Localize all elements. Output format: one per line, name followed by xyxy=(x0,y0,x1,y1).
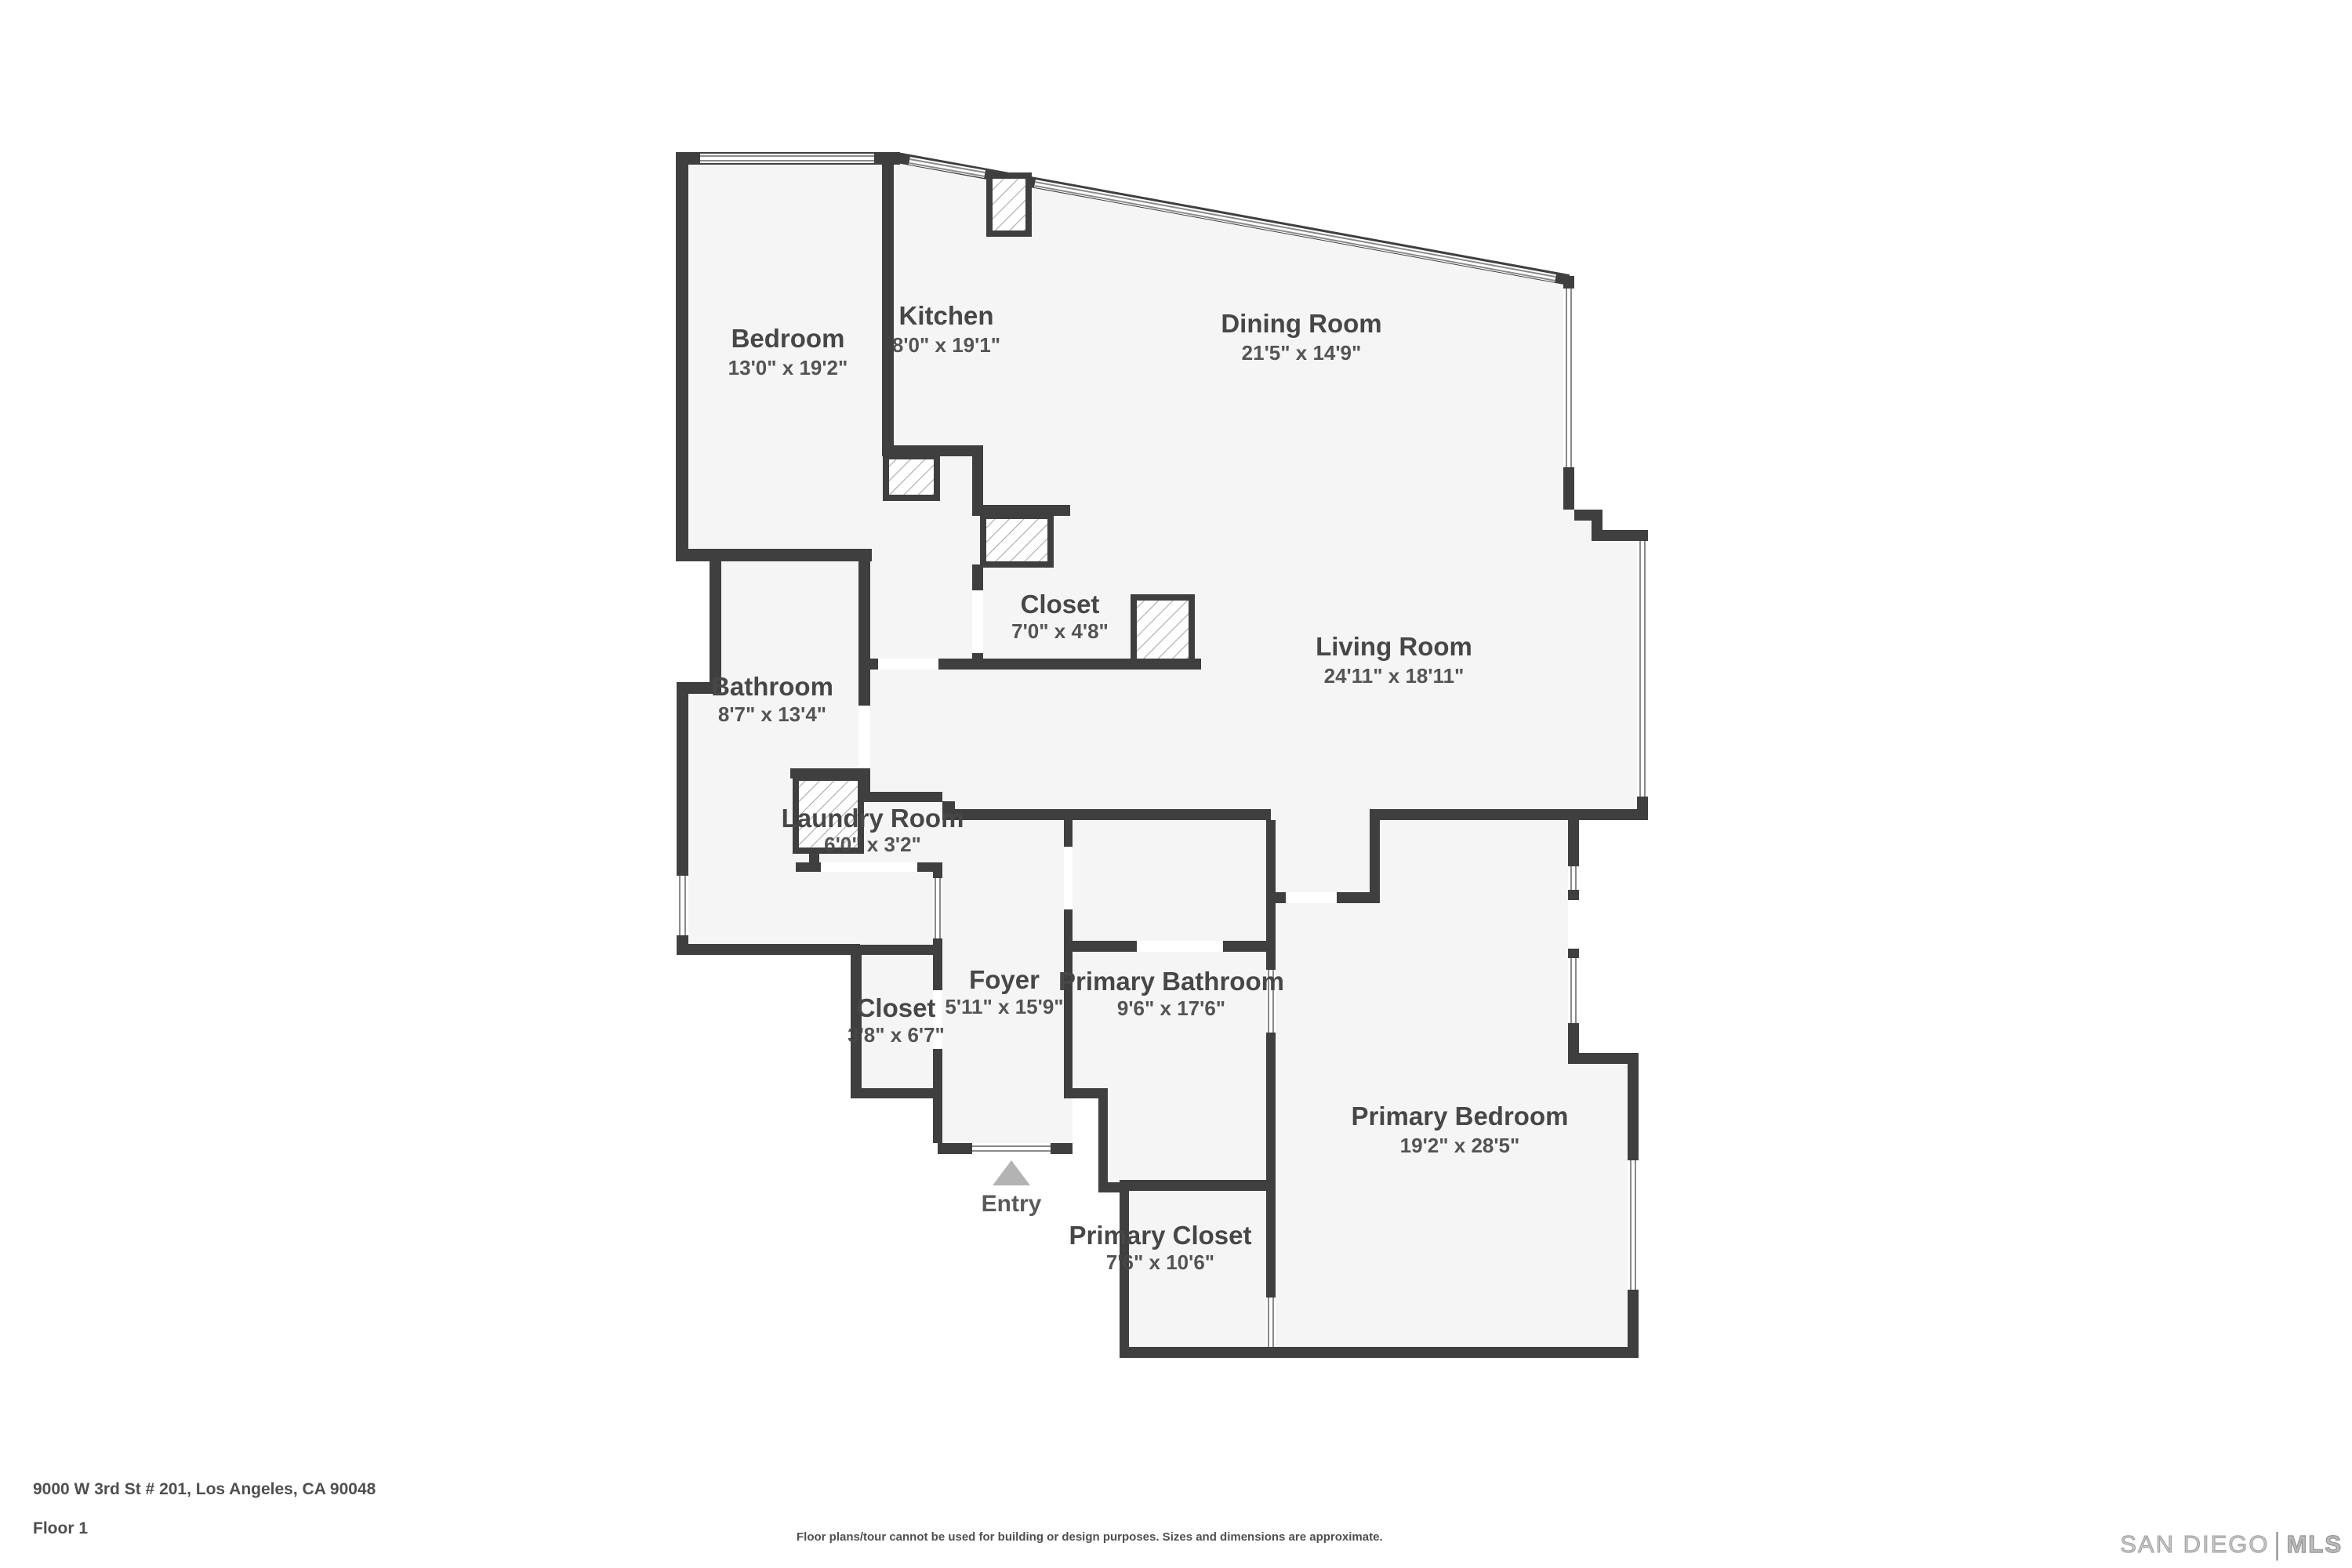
svg-text:Dining Room: Dining Room xyxy=(1221,309,1381,338)
watermark-sandiego: SAN DIEGO xyxy=(2120,1530,2269,1559)
svg-text:7'6" x 10'6": 7'6" x 10'6" xyxy=(1106,1250,1214,1274)
svg-text:Bathroom: Bathroom xyxy=(711,672,833,701)
room-label-dining-room: Dining Room 21'5" x 14'9" xyxy=(1221,309,1381,365)
room-label-closet: Closet 7'0" x 4'8" xyxy=(1011,590,1109,643)
svg-text:Primary Bathroom: Primary Bathroom xyxy=(1058,967,1284,996)
entry-marker: Entry xyxy=(982,1160,1042,1217)
svg-text:8'7" x 13'4": 8'7" x 13'4" xyxy=(718,702,826,726)
svg-text:Primary Closet: Primary Closet xyxy=(1069,1221,1252,1250)
svg-text:13'0" x 19'2": 13'0" x 19'2" xyxy=(728,356,848,379)
svg-text:Living Room: Living Room xyxy=(1316,632,1472,661)
kitchen-hatch xyxy=(886,456,937,498)
svg-text:8'0" x 19'1": 8'0" x 19'1" xyxy=(892,333,1000,357)
room-label-bedroom: Bedroom 13'0" x 19'2" xyxy=(728,324,848,379)
closet-hatch-right xyxy=(1134,597,1192,662)
svg-text:Kitchen: Kitchen xyxy=(898,301,993,330)
room-label-kitchen: Kitchen 8'0" x 19'1" xyxy=(892,301,1000,357)
svg-text:21'5" x 14'9": 21'5" x 14'9" xyxy=(1242,341,1362,365)
watermark-separator: | xyxy=(2274,1527,2282,1563)
address-text: 9000 W 3rd St # 201, Los Angeles, CA 900… xyxy=(33,1480,376,1499)
svg-text:6'0" x 3'2": 6'0" x 3'2" xyxy=(824,833,921,856)
room-label-living-room: Living Room 24'11" x 18'11" xyxy=(1316,632,1472,688)
room-label-bathroom: Bathroom 8'7" x 13'4" xyxy=(711,672,833,726)
svg-text:Foyer: Foyer xyxy=(969,965,1040,994)
svg-text:24'11" x 18'11": 24'11" x 18'11" xyxy=(1324,664,1465,688)
svg-text:5'11" x 15'9": 5'11" x 15'9" xyxy=(945,995,1063,1018)
entry-arrow-icon xyxy=(993,1160,1030,1185)
watermark-mls: MLS xyxy=(2287,1530,2343,1559)
closet-hatch-left xyxy=(983,516,1051,564)
svg-text:7'0" x 4'8": 7'0" x 4'8" xyxy=(1011,619,1109,643)
mls-watermark: SAN DIEGO|MLS xyxy=(2120,1530,2343,1559)
svg-text:9'6" x 17'6": 9'6" x 17'6" xyxy=(1117,996,1225,1020)
chimney-hatch xyxy=(989,176,1029,234)
svg-text:Closet: Closet xyxy=(857,993,936,1022)
svg-text:Primary Bedroom: Primary Bedroom xyxy=(1352,1102,1569,1131)
floor-label: Floor 1 xyxy=(33,1519,88,1538)
floor-plan: Bedroom 13'0" x 19'2" Kitchen 8'0" x 19'… xyxy=(0,0,2352,1568)
svg-text:Laundry Room: Laundry Room xyxy=(782,804,964,833)
svg-text:Closet: Closet xyxy=(1021,590,1100,619)
room-label-closet-small: Closet 3'8" x 6'7" xyxy=(848,993,945,1047)
svg-text:3'8" x 6'7": 3'8" x 6'7" xyxy=(848,1023,945,1047)
svg-text:19'2" x 28'5": 19'2" x 28'5" xyxy=(1400,1134,1520,1157)
svg-text:Entry: Entry xyxy=(982,1191,1042,1217)
svg-text:Bedroom: Bedroom xyxy=(731,324,845,353)
disclaimer-text: Floor plans/tour cannot be used for buil… xyxy=(797,1530,1383,1544)
